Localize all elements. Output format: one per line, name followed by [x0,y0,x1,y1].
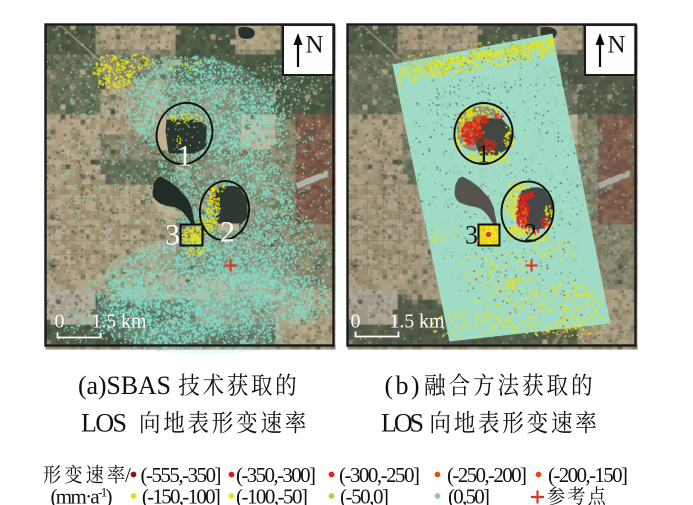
svg-text:(-555,-350]: (-555,-350] [141,463,222,487]
svg-text:(-150,-100]: (-150,-100] [142,485,221,505]
svg-text:/: / [125,463,131,487]
svg-text:0: 0 [351,311,361,333]
svg-text:(-250,-200]: (-250,-200] [447,463,527,487]
svg-text:(b): (b) [385,371,420,400]
svg-text:0: 0 [55,311,65,333]
svg-text:1: 1 [177,140,192,173]
svg-text:2: 2 [524,219,537,248]
svg-text:3: 3 [165,219,180,252]
svg-text:(-300,-250]: (-300,-250] [339,463,420,487]
svg-text:(-350,-300]: (-350,-300] [236,463,316,487]
svg-text:(-200,-150]: (-200,-150] [548,463,628,487]
svg-text:LOS: LOS [81,409,127,438]
svg-text:(a)SBAS: (a)SBAS [78,371,171,400]
svg-text:1: 1 [477,140,490,169]
svg-text:(0,50]: (0,50] [448,485,490,505]
svg-text:1.5 km: 1.5 km [390,311,445,333]
svg-text:(-100,-50]: (-100,-50] [236,485,308,505]
svg-text:1.5 km: 1.5 km [92,311,147,333]
svg-text:2: 2 [220,216,235,249]
svg-text:(-50,0]: (-50,0] [340,485,389,505]
svg-text:LOS: LOS [381,409,424,438]
